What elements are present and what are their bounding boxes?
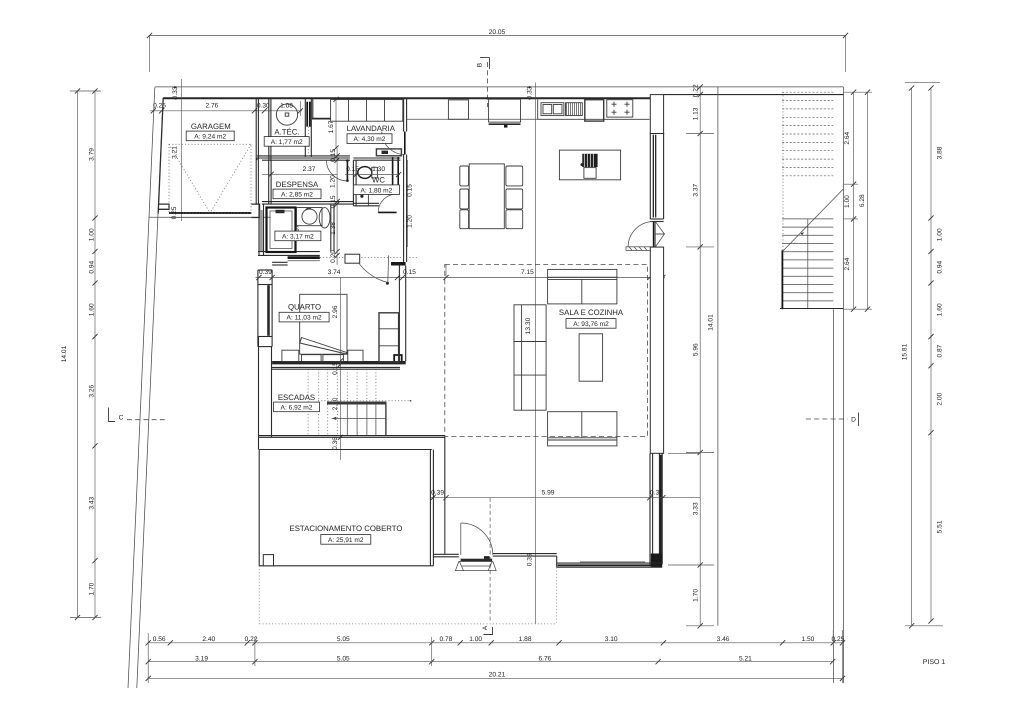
svg-text:0.15: 0.15 xyxy=(403,269,416,276)
svg-text:3.43: 3.43 xyxy=(88,496,95,509)
svg-text:0.15: 0.15 xyxy=(407,184,414,197)
svg-text:A: A xyxy=(482,625,489,630)
svg-text:13.30: 13.30 xyxy=(525,317,532,334)
svg-text:2.64: 2.64 xyxy=(844,257,851,270)
svg-text:ESCADAS: ESCADAS xyxy=(278,393,315,402)
svg-text:7.15: 7.15 xyxy=(521,269,534,276)
svg-text:A: 4,30 m2: A: 4,30 m2 xyxy=(354,136,386,143)
svg-text:1.20: 1.20 xyxy=(329,175,336,188)
svg-text:0.15: 0.15 xyxy=(346,166,359,173)
svg-text:14.01: 14.01 xyxy=(708,314,715,331)
svg-text:1.30: 1.30 xyxy=(372,166,385,173)
svg-text:1.67: 1.67 xyxy=(328,120,335,133)
svg-text:2.76: 2.76 xyxy=(205,103,218,110)
svg-text:5.99: 5.99 xyxy=(542,489,555,496)
svg-text:A: 1,77 m2: A: 1,77 m2 xyxy=(271,139,303,146)
svg-text:5.05: 5.05 xyxy=(337,636,350,643)
svg-text:QUARTO: QUARTO xyxy=(288,303,321,312)
svg-text:2.00: 2.00 xyxy=(937,392,944,405)
svg-text:0.39: 0.39 xyxy=(650,489,663,496)
svg-text:3.10: 3.10 xyxy=(605,636,618,643)
svg-text:2.96: 2.96 xyxy=(332,305,339,318)
svg-text:0.20: 0.20 xyxy=(330,250,337,263)
svg-text:3.46: 3.46 xyxy=(717,636,730,643)
svg-text:A: 25,91 m2: A: 25,91 m2 xyxy=(328,537,364,544)
svg-text:0.33: 0.33 xyxy=(526,86,533,99)
svg-text:3.19: 3.19 xyxy=(195,655,208,662)
svg-text:3.26: 3.26 xyxy=(88,384,95,397)
svg-text:3.79: 3.79 xyxy=(88,148,95,161)
svg-text:C: C xyxy=(119,415,124,422)
svg-text:0.33: 0.33 xyxy=(172,86,179,99)
svg-text:1.00: 1.00 xyxy=(937,228,944,241)
svg-text:ESTACIONAMENTO COBERTO: ESTACIONAMENTO COBERTO xyxy=(290,524,403,533)
svg-text:PISO 1: PISO 1 xyxy=(923,659,946,666)
svg-text:SALA E COZINHA: SALA E COZINHA xyxy=(559,308,624,317)
svg-text:1.00: 1.00 xyxy=(844,195,851,208)
svg-text:1.08: 1.08 xyxy=(280,103,293,110)
svg-text:3.21: 3.21 xyxy=(171,146,178,159)
svg-text:1.60: 1.60 xyxy=(88,303,95,316)
svg-text:1.13: 1.13 xyxy=(693,107,700,120)
svg-text:1.70: 1.70 xyxy=(88,582,95,595)
svg-text:15.81: 15.81 xyxy=(902,343,909,360)
svg-text:0.94: 0.94 xyxy=(88,260,95,273)
svg-text:A: 1,80 m2: A: 1,80 m2 xyxy=(360,187,392,194)
svg-text:1.70: 1.70 xyxy=(693,589,700,602)
svg-text:2.37: 2.37 xyxy=(303,166,316,173)
svg-text:5.96: 5.96 xyxy=(693,343,700,356)
svg-text:0.22: 0.22 xyxy=(693,84,700,97)
svg-text:A: 93,76 m2: A: 93,76 m2 xyxy=(573,321,609,328)
svg-text:DESPENSA: DESPENSA xyxy=(276,180,319,189)
svg-text:0.56: 0.56 xyxy=(153,636,166,643)
svg-text:3.37: 3.37 xyxy=(693,183,700,196)
svg-text:B: B xyxy=(477,62,484,67)
svg-text:0.78: 0.78 xyxy=(439,636,452,643)
svg-text:A: 6,92 m2: A: 6,92 m2 xyxy=(281,405,313,412)
svg-text:0.22: 0.22 xyxy=(245,636,258,643)
svg-text:0.25: 0.25 xyxy=(153,103,166,110)
svg-text:6.76: 6.76 xyxy=(538,655,551,662)
svg-text:A.TÉC.: A.TÉC. xyxy=(274,128,299,137)
svg-text:A: 11,03 m2: A: 11,03 m2 xyxy=(287,315,322,322)
svg-text:3.74: 3.74 xyxy=(328,269,341,276)
svg-text:1.00: 1.00 xyxy=(88,228,95,241)
svg-text:3.88: 3.88 xyxy=(937,146,944,159)
svg-text:GARAGEM: GARAGEM xyxy=(191,122,231,131)
svg-text:0.94: 0.94 xyxy=(937,260,944,273)
svg-text:1.50: 1.50 xyxy=(801,636,814,643)
svg-text:0.39: 0.39 xyxy=(526,553,533,566)
svg-text:14.01: 14.01 xyxy=(61,345,68,362)
svg-text:0.39: 0.39 xyxy=(259,269,272,276)
svg-text:LAVANDARIA: LAVANDARIA xyxy=(347,124,396,133)
svg-text:1.60: 1.60 xyxy=(937,303,944,316)
svg-text:A: 9,24 m2: A: 9,24 m2 xyxy=(194,134,226,141)
svg-text:2.40: 2.40 xyxy=(202,636,215,643)
svg-text:5.05: 5.05 xyxy=(337,655,350,662)
svg-text:WC: WC xyxy=(372,176,385,185)
svg-text:0.36: 0.36 xyxy=(332,437,339,450)
svg-text:6.28: 6.28 xyxy=(859,194,866,207)
svg-text:1.20: 1.20 xyxy=(407,215,414,228)
svg-text:20.21: 20.21 xyxy=(489,672,506,679)
svg-text:2.64: 2.64 xyxy=(844,131,851,144)
svg-text:1.88: 1.88 xyxy=(519,636,532,643)
svg-text:0.87: 0.87 xyxy=(937,344,944,357)
svg-text:5.21: 5.21 xyxy=(739,655,752,662)
svg-text:3.33: 3.33 xyxy=(693,502,700,515)
svg-text:1.00: 1.00 xyxy=(469,636,482,643)
svg-text:20.05: 20.05 xyxy=(489,29,506,36)
svg-text:0.15: 0.15 xyxy=(330,149,337,162)
svg-text:D: D xyxy=(851,417,856,424)
svg-text:A: 2,85 m2: A: 2,85 m2 xyxy=(281,192,313,199)
svg-text:5.51: 5.51 xyxy=(937,520,944,533)
svg-text:A: 3,17 m2: A: 3,17 m2 xyxy=(282,234,314,241)
